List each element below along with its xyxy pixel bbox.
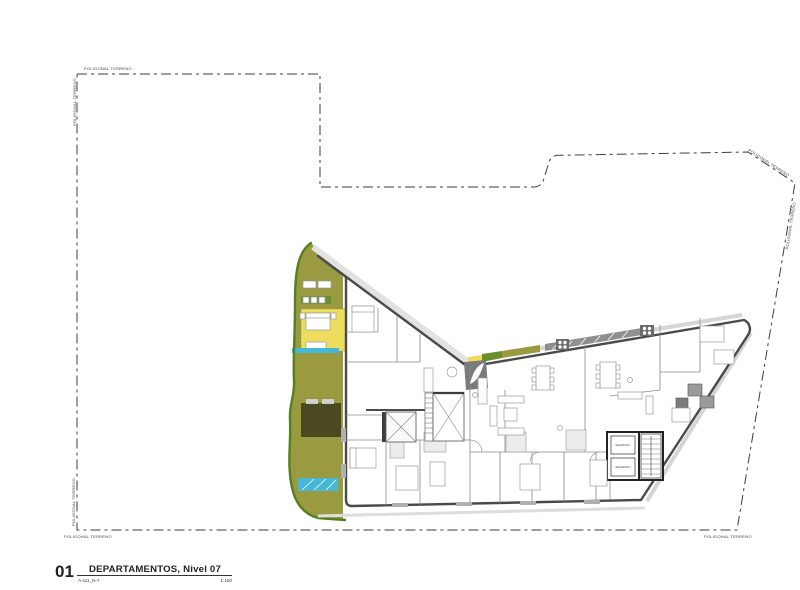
planter-flower-1 — [556, 339, 569, 350]
terrace-lap-pool — [298, 478, 338, 491]
deck-planter-2 — [322, 399, 334, 404]
sheet-code: A-111_N-7 — [78, 578, 100, 583]
deck-planter-1 — [306, 399, 318, 404]
planter-flower-2 — [640, 325, 654, 336]
sidewalk-south — [318, 508, 645, 516]
building: ELEVADOR 1 ELEVADOR 2 — [313, 247, 751, 516]
terrace-west — [289, 243, 346, 520]
boundary-label-bottom-left: POLIGONAL TERRENO — [64, 534, 112, 539]
sheet-number: 01 — [55, 562, 74, 581]
elevator-2-label: ELEVADOR 2 — [616, 466, 632, 469]
sheet-scale: 1:150 — [221, 578, 233, 583]
elevator-core: ELEVADOR 1 ELEVADOR 2 — [607, 432, 663, 480]
boundary-label-left-bottom: POLIGONAL TERRENO — [71, 478, 76, 526]
elevator-1-label: ELEVADOR 1 — [616, 444, 632, 447]
stair-run — [641, 434, 661, 478]
sheet-title: DEPARTAMENTOS, Nivel 07 — [89, 564, 221, 575]
boundary-label-left-top: POLIGONAL TERRENO — [72, 78, 77, 126]
terrace-water-strip — [292, 348, 339, 353]
boundary-label-top-right: POLIGONAL TERRENO — [747, 148, 790, 178]
terrace-dark-deck — [301, 403, 341, 437]
boundary-label-right-edge: POLIGONAL TERRENO — [784, 202, 796, 250]
title-block: 01 A-111_N-7 DEPARTAMENTOS, Nivel 07 1:1… — [55, 562, 232, 583]
drawing-sheet: POLIGONAL TERRENO POLIGONAL TERRENO POLI… — [0, 0, 800, 590]
boundary-label-bottom-right: POLIGONAL TERRENO — [704, 534, 752, 539]
boundary-label-top-left: POLIGONAL TERRENO — [84, 66, 132, 71]
